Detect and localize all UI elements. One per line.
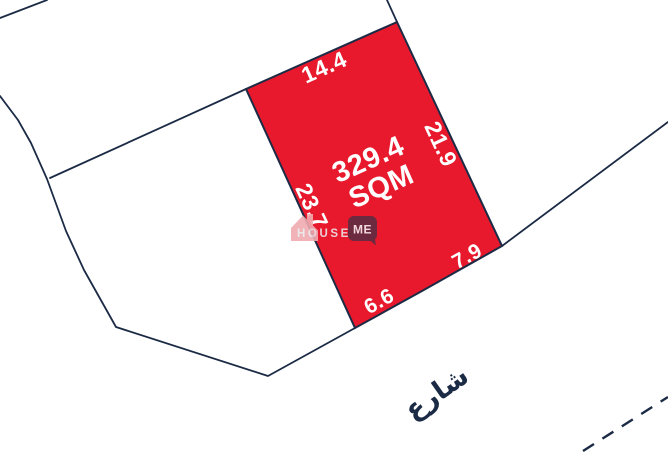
boundary-line-top-left-corner: [0, 0, 47, 18]
watermark-me-text: ME: [353, 223, 372, 237]
boundary-line-plot-right-extension: [387, 0, 397, 22]
plot-map: 14.4 21.9 23.7 6.6 7.9 329.4 SQM شارع HO…: [0, 0, 668, 452]
boundary-line-plot-top-extension: [50, 89, 246, 178]
boundary-line-road-right: [502, 122, 668, 246]
dashed-boundary-line: [583, 397, 668, 451]
watermark-brand-text: HOUSE: [297, 228, 351, 240]
plot-map-canvas: 14.4 21.9 23.7 6.6 7.9 329.4 SQM شارع HO…: [0, 0, 668, 452]
street-label: شارع: [399, 360, 475, 426]
